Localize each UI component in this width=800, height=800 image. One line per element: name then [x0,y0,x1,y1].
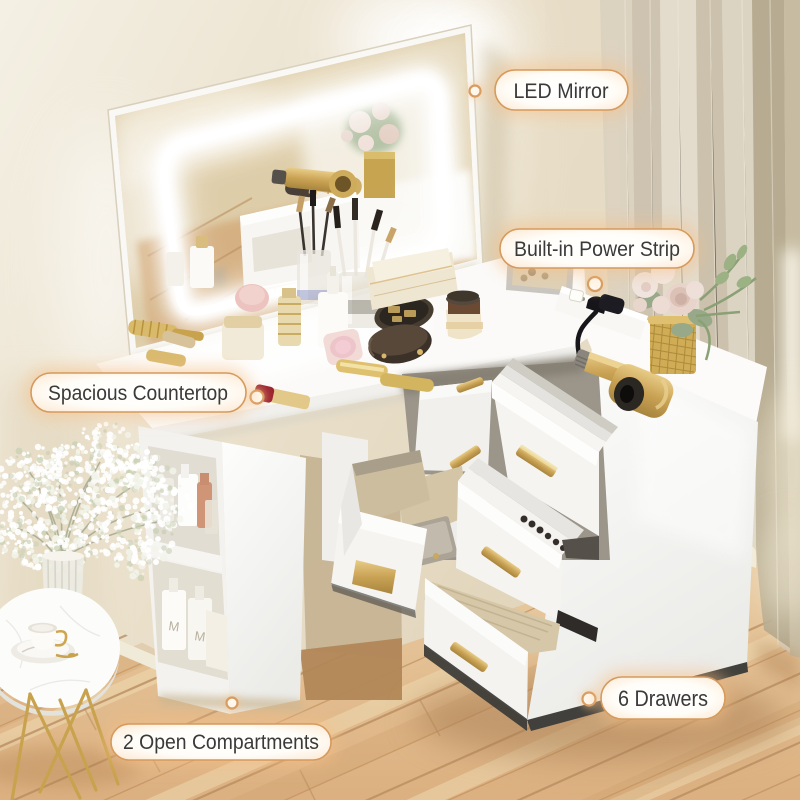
svg-text:2 Open Compartments: 2 Open Compartments [123,731,319,754]
svg-text:Spacious Countertop: Spacious Countertop [48,381,228,405]
svg-text:M: M [194,628,207,644]
svg-text:6 Drawers: 6 Drawers [618,686,708,711]
svg-text:Built-in Power Strip: Built-in Power Strip [514,237,680,261]
svg-text:M: M [168,618,181,634]
svg-text:LED Mirror: LED Mirror [514,79,609,103]
